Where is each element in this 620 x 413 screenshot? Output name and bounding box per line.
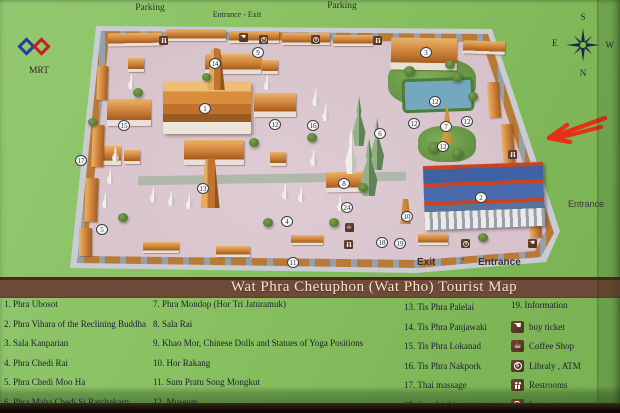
legend-icon-label: Libraly , ATM [529,361,581,371]
map-marker-6: 6 [374,128,386,139]
atm-icon: $ [259,35,268,44]
map-tree [358,183,368,192]
map-title: Wat Phra Chetuphon (Wat Pho) Tourist Map [0,279,620,296]
legend-item: 4. Phra Chedi Rai [4,358,154,368]
map-building [96,66,108,100]
legend-item: 17. Thai massage [404,380,514,390]
map-building [108,33,162,47]
map-building [333,35,373,46]
tourist-map-sign: 123456789101112121212121314151617181924☚… [0,0,620,413]
map-marker-17: 17 [75,155,87,166]
map-tree [445,60,455,69]
map-tree [452,148,463,158]
map-tree [249,138,259,147]
map-marker-1: 1 [199,103,211,114]
legend-item: 11. Sum Pratu Song Mongkut [153,377,408,387]
map-marker-10: 10 [401,211,413,222]
map-marker-5: 5 [96,224,108,235]
photo-bottom-edge [0,403,620,413]
legend-item: 10. Hor Rakang [153,358,408,368]
legend-icon-label: Restrooms [529,380,568,390]
map-building [282,33,330,45]
compass-east: E [552,38,558,48]
map-marker-18: 18 [376,237,388,248]
map-tree [329,218,339,227]
legend-item: 13. Tis Phra Palelai [404,302,514,312]
map-marker-14: 14 [209,58,221,69]
legend-item: 3. Sala Kanparian [4,338,154,348]
mrt-label: MRT [18,66,60,76]
buy-ticket-icon: ☚ [528,239,537,248]
legend-item: 14. Tis Phra Panjawaki [404,322,514,332]
legend-column-3: 13. Tis Phra Palelai14. Tis Phra Panjawa… [404,302,514,413]
handwritten-note: 7 [446,257,478,266]
map-tree [452,72,463,82]
restroom-icon [159,36,168,45]
map-tree [404,66,415,76]
map-tree [88,118,97,126]
map-marker-24: 24 [341,202,353,213]
restroom-icon [373,36,382,45]
map-pond [401,77,474,113]
map-building [143,242,179,253]
legend-item: 16. Tis Phra Nakpork [404,361,514,371]
map-tree [202,73,211,81]
restroom-icon [344,240,353,249]
sign-fold-edge [597,0,620,403]
map-marker-12: 12 [269,119,281,130]
map-marker-3: 3 [420,47,432,58]
legend-icon-label: buy ticket [529,322,565,332]
map-building [487,82,501,119]
map-marker-19: 19 [394,238,406,249]
legend-column-1: 1. Phra Ubosot2. Phra Vihara of the Recl… [4,299,154,413]
atm-icon: $ [461,239,470,248]
legend-column-2: 7. Phra Mondop (Hor Tri Jaturamuk)8. Sal… [153,299,408,413]
buy-ticket-icon: ☚ [511,321,524,333]
coffee-icon: ☕ [511,340,524,352]
legend-item: 7. Phra Mondop (Hor Tri Jaturamuk) [153,299,408,309]
map-marker-16: 16 [307,120,319,131]
map-tree [307,133,317,142]
mrt-logo-red-diamond [32,37,50,55]
map-marker-7: 7 [440,121,452,132]
legend-item: 8. Sala Rai [153,319,408,329]
map-tree [118,213,128,222]
compass-star-icon [566,28,600,62]
map-building [254,93,296,117]
map-marker-12: 12 [437,141,449,152]
map-building [418,234,448,245]
map-building [124,150,140,164]
entrance-exit-label-top: Entrance - Exit [194,10,280,19]
map-marker-15: 15 [118,120,130,131]
title-banner: Wat Phra Chetuphon (Wat Pho) Tourist Map [0,277,620,298]
map-marker-13: 13 [197,183,209,194]
map-marker-12: 12 [408,118,420,129]
map-building [166,29,226,41]
map-building [229,31,279,43]
map-tree [263,218,273,227]
entrance-label-bottom: Entrance [478,257,521,268]
map-building [128,58,144,72]
legend-icon-label: Coffee Shop [529,341,574,351]
map-marker-8: 8 [338,178,350,189]
map-marker-4: 4 [281,216,293,227]
parking-label-right: Parking [310,1,374,11]
legend-item: 1. Phra Ubosot [4,299,154,309]
map-building [216,246,250,257]
map-building [291,235,323,245]
legend-item: 2. Phra Vihara of the Reclining Buddha [4,319,154,329]
restroom-icon [508,150,517,159]
map-marker-2: 2 [475,192,487,203]
legend-item: 15. Tis Phra Lokanad [404,341,514,351]
atm-icon: $ [311,35,320,44]
map-building [91,125,104,167]
map-marker-12: 12 [429,96,441,107]
exit-label-bottom: Exit [417,257,435,268]
map-tree [478,233,488,242]
map-tree [133,88,143,97]
map-building [84,178,99,222]
atm-icon: $ [511,360,524,372]
restroom-icon [511,379,524,391]
legend-item: 5. Phra Chedi Moo Ha [4,377,154,387]
map-marker-11: 11 [287,257,299,268]
map-building [262,60,278,74]
map-marker-12: 12 [461,116,473,127]
map-tree [468,92,478,101]
buy-ticket-icon: ☚ [239,33,248,42]
map-building [270,152,286,166]
parking-label-left: Parking [118,3,182,13]
legend-item: 9. Khao Mor, Chinese Dolls and Statues o… [153,338,408,348]
map-building [79,228,92,256]
map-building [463,40,505,54]
mrt-logo [17,36,61,60]
map-marker-9: 9 [252,47,264,58]
coffee-icon: ☕ [345,223,354,232]
